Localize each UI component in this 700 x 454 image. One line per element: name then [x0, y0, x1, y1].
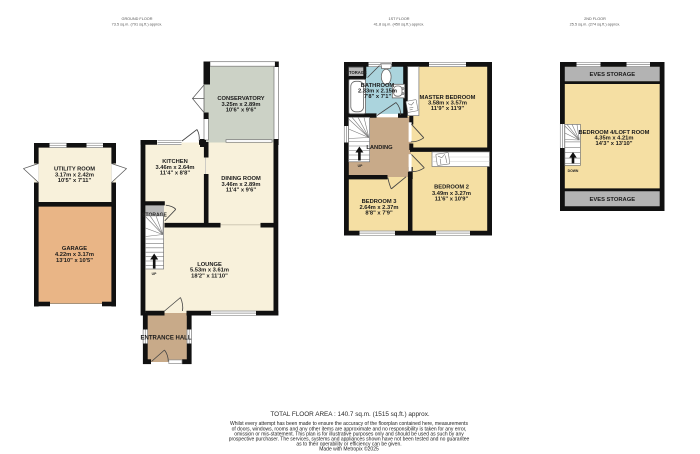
svg-text:GROUND FLOOR: GROUND FLOOR	[121, 17, 152, 21]
svg-text:10'5" x 7'11": 10'5" x 7'11"	[58, 178, 92, 184]
svg-text:11'9" x 11'9": 11'9" x 11'9"	[431, 106, 464, 112]
svg-text:8'8" x 7'9": 8'8" x 7'9"	[365, 211, 393, 217]
svg-text:11'4" x 9'6": 11'4" x 9'6"	[226, 188, 257, 194]
svg-text:10'6" x 9'6": 10'6" x 9'6"	[226, 108, 257, 114]
svg-text:7'8" x 7'1": 7'8" x 7'1"	[364, 94, 392, 100]
svg-text:13'10" x 10'5": 13'10" x 10'5"	[56, 258, 93, 264]
svg-text:TOTAL FLOOR AREA : 140.7 sq.m.: TOTAL FLOOR AREA : 140.7 sq.m. (1515 sq.…	[270, 411, 430, 418]
svg-text:Made with Metropix ©2025: Made with Metropix ©2025	[319, 446, 379, 453]
svg-text:2ND FLOOR: 2ND FLOOR	[584, 17, 606, 21]
svg-text:EVES STORAGE: EVES STORAGE	[589, 197, 635, 203]
svg-text:ENTRANCE HALL: ENTRANCE HALL	[141, 336, 192, 342]
svg-text:GARAGE: GARAGE	[62, 246, 87, 252]
svg-text:LANDING: LANDING	[366, 145, 393, 151]
svg-text:73.5 sq.m. (791 sq.ft.) approx: 73.5 sq.m. (791 sq.ft.) approx.	[112, 23, 163, 27]
svg-text:BEDROOM 2: BEDROOM 2	[434, 184, 469, 190]
svg-text:STORAGE: STORAGE	[346, 70, 367, 75]
svg-text:41.8 sq.m. (450 sq.ft.) approx: 41.8 sq.m. (450 sq.ft.) approx.	[374, 23, 425, 27]
svg-text:UP: UP	[152, 272, 157, 276]
svg-text:11'6" x 10'9": 11'6" x 10'9"	[435, 197, 469, 203]
svg-text:18'2" x 11'10": 18'2" x 11'10"	[191, 273, 228, 279]
svg-text:1ST FLOOR: 1ST FLOOR	[388, 17, 409, 21]
svg-text:25.5 sq.m. (274 sq.ft.) approx: 25.5 sq.m. (274 sq.ft.) approx.	[570, 23, 621, 27]
svg-text:11'4" x 8'8": 11'4" x 8'8"	[160, 171, 191, 177]
svg-text:EVES STORAGE: EVES STORAGE	[589, 72, 635, 78]
svg-text:14'3" x 13'10": 14'3" x 13'10"	[596, 141, 633, 147]
svg-text:UP: UP	[358, 164, 363, 168]
svg-text:DOWN: DOWN	[568, 169, 579, 173]
